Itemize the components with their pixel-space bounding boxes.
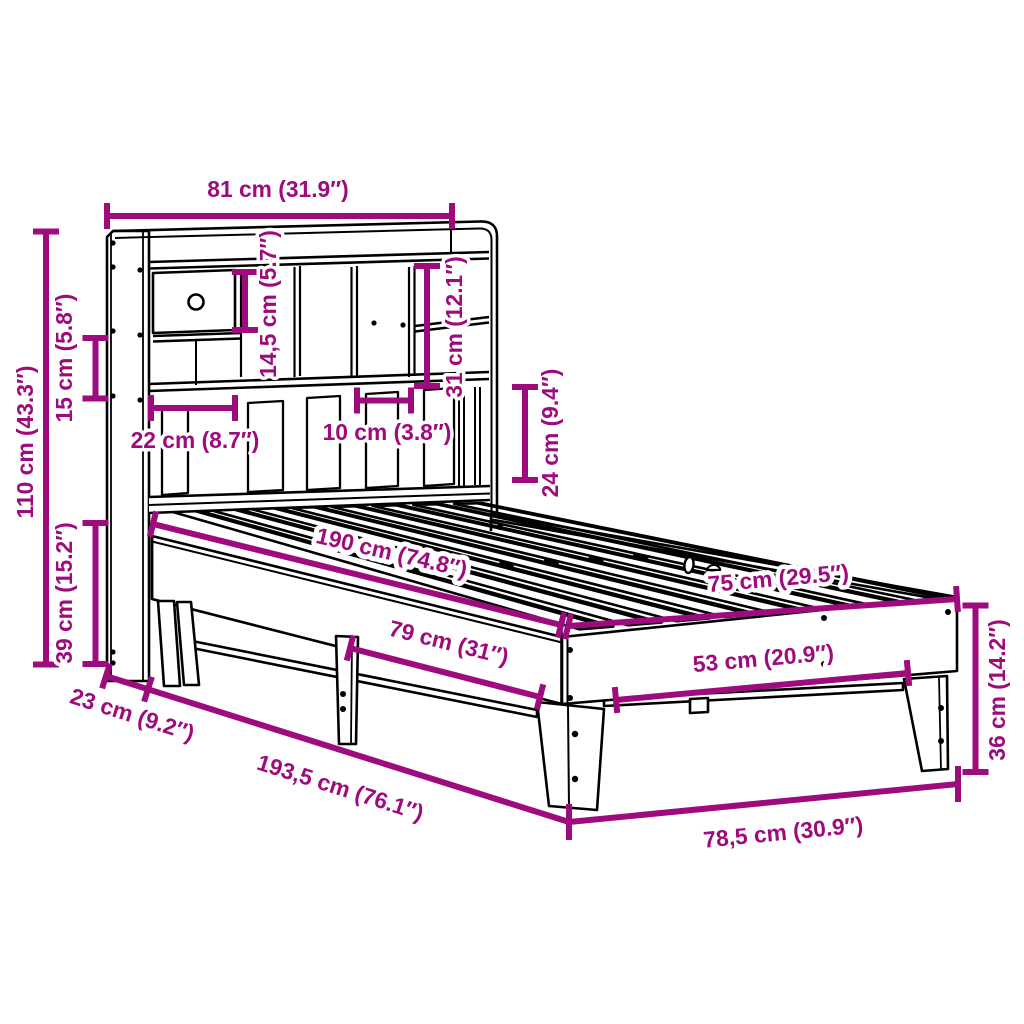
svg-text:81 cm (31.9″): 81 cm (31.9″) [207,176,348,202]
svg-text:22 cm (8.7″): 22 cm (8.7″) [131,427,260,453]
svg-text:31 cm (12.1″): 31 cm (12.1″) [441,256,467,397]
svg-text:15 cm (5.8″): 15 cm (5.8″) [51,294,77,423]
svg-text:14,5 cm (5.7″): 14,5 cm (5.7″) [255,230,281,378]
svg-text:36 cm (14.2″): 36 cm (14.2″) [984,619,1010,760]
svg-text:24 cm (9.4″): 24 cm (9.4″) [537,369,563,498]
svg-text:39 cm (15.2″): 39 cm (15.2″) [51,522,77,663]
svg-text:10 cm (3.8″): 10 cm (3.8″) [323,419,452,445]
svg-text:110 cm (43.3″): 110 cm (43.3″) [12,366,38,519]
